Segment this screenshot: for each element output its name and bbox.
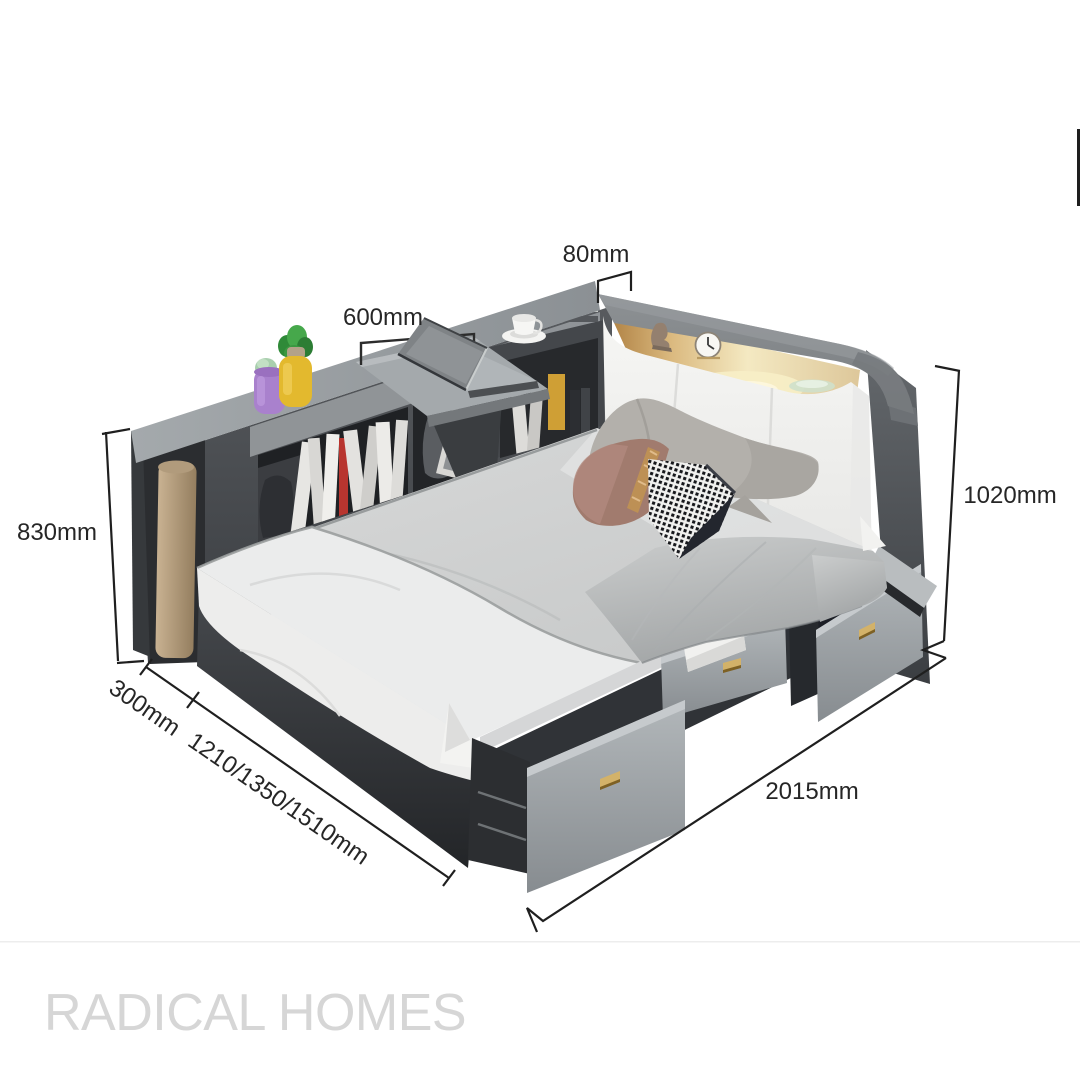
- svg-text:600mm: 600mm: [343, 304, 423, 331]
- svg-text:2015mm: 2015mm: [765, 778, 858, 805]
- svg-text:1020mm: 1020mm: [963, 482, 1056, 509]
- svg-text:80mm: 80mm: [563, 241, 630, 268]
- svg-text:830mm: 830mm: [17, 519, 97, 546]
- svg-text:RADICAL HOMES: RADICAL HOMES: [44, 984, 466, 1042]
